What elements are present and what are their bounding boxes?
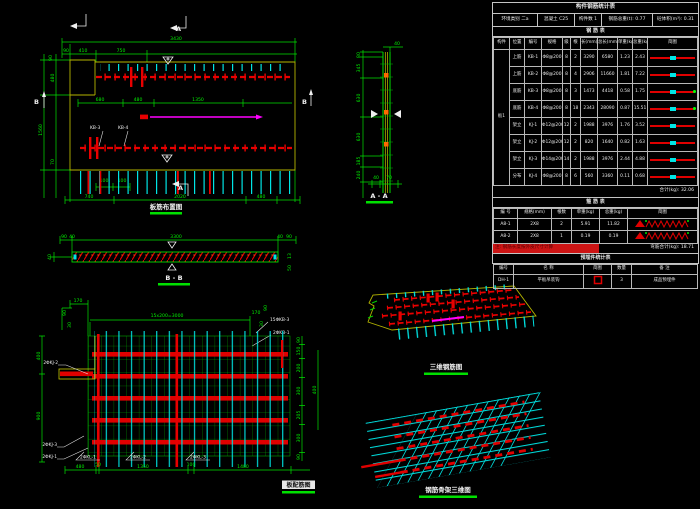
dim-label: 40 — [394, 41, 400, 47]
hoop-table: 编 号规格(mm)根数单重(kg)总重(kg)简图 A8-12X825.9111… — [493, 208, 698, 244]
dim-label: 900 — [36, 412, 42, 421]
table-row[interactable]: A8-12X825.9111.82 — [494, 219, 698, 231]
dim-label: 410 — [79, 48, 88, 54]
rebar-shape — [650, 121, 695, 131]
cyan-bars — [94, 331, 292, 467]
dim-label: 90 — [296, 337, 302, 343]
dim-label: 1350 — [192, 97, 204, 103]
dim-label: 30 — [67, 322, 73, 328]
dim-label: 40 — [47, 254, 53, 260]
rebar-row-bottom — [80, 137, 292, 159]
dim-label: 480 — [76, 464, 85, 470]
magenta-bar — [140, 115, 263, 120]
info-cell: 钢筋总重(t): 0.77 — [602, 14, 653, 26]
dim-label: 400 — [36, 352, 42, 361]
dim-label: 30 — [259, 321, 265, 327]
rebar-shape — [650, 70, 695, 80]
title-underline — [158, 283, 190, 286]
title-underline — [366, 201, 393, 204]
rebar-leader: 2ΦKL-1 — [80, 455, 96, 461]
dim-label: 480 — [50, 74, 56, 83]
end-mark — [274, 255, 277, 260]
dim-label: 1560 — [38, 124, 44, 136]
dim-label: 3430 — [170, 36, 182, 42]
rebar-leader: 2ΦKJ-1 — [42, 454, 57, 460]
end-mark — [74, 255, 77, 260]
level-symbol — [162, 155, 172, 162]
info-cell: 环境类别 二a — [493, 14, 538, 26]
plan-view[interactable]: 3430 90 410 750 90 480 1560 70 680 480 1… — [34, 14, 313, 215]
dim-label: 40 — [69, 234, 75, 240]
table-row[interactable]: 分布KJ-4Φ8@2008656033600.110.68 — [494, 169, 698, 186]
iso-cyan-stubs — [394, 316, 534, 340]
red-bar-vert — [97, 334, 100, 467]
embed-shape — [593, 275, 603, 285]
dim-label: 2020 — [174, 194, 186, 200]
dim-label: 150 — [296, 347, 302, 356]
info-cell: 砼体积(m³): 0.31 — [653, 14, 698, 26]
embed-table: 编号名 称简图数量备 注 DH-1 平板吊装钩 3 成品预埋件 — [493, 264, 698, 289]
dim-label: 680 — [96, 97, 105, 103]
rebar-leader: KB-3 — [90, 125, 100, 131]
red-bar-vert — [176, 334, 179, 467]
dim-label: 70 — [386, 175, 392, 181]
cyan-band-bottom — [80, 171, 298, 194]
dim-label: 1350 — [137, 464, 149, 470]
dim-label: 240 — [356, 171, 362, 180]
iso1-title: 三维钢筋图 — [430, 362, 463, 371]
table-header: 编 号规格(mm)根数单重(kg)总重(kg)简图 — [494, 209, 698, 219]
title-underline — [282, 491, 315, 494]
dim-label: 480 — [134, 97, 143, 103]
dim-label: 480 — [257, 194, 266, 200]
section-bb-title: B - B — [165, 274, 182, 282]
rebar-shape — [650, 155, 695, 165]
dim-label: 1480 — [237, 464, 249, 470]
svg-text:B: B — [302, 98, 307, 106]
title-underline — [419, 496, 477, 499]
rebar-leader: 2ΦKJ-2 — [43, 360, 58, 366]
dim-label: 70 — [50, 159, 56, 165]
rebar-shape — [650, 87, 695, 97]
dim-label: 15x200=3000 — [151, 313, 184, 319]
dim-label: 400 — [312, 386, 318, 395]
bent-bar-shape — [633, 219, 693, 228]
dim-label: 90 — [61, 234, 67, 240]
member — [380, 52, 393, 193]
rebar-layout-plan[interactable]: 170 90 30 15x200=3000 170 90 30 15ΦKB-3 … — [36, 298, 318, 494]
schedule-panel: 构件钢筋统计表 环境类别 二a 混凝土 C25 构件数 1 钢筋总重(t): 0… — [492, 2, 699, 264]
note-highlight: 注: 钢筋长度按外皮尺寸计算 — [493, 244, 599, 253]
iso-rebar-view[interactable]: 三维钢筋图 — [368, 284, 536, 375]
iso2-title: 钢筋骨架三维图 — [425, 485, 471, 494]
hoop-table-title: 箍 筋 表 — [493, 198, 698, 208]
dim-label: 630 — [356, 94, 362, 103]
table-row[interactable]: A8-22X810.190.19 — [494, 231, 698, 243]
dim-label: 90 — [63, 48, 69, 54]
rebar-leader: 2ΦKL-3 — [190, 455, 206, 461]
dim-label: 100 — [187, 462, 196, 468]
title-underline — [424, 373, 468, 376]
dim-label: 750 — [117, 48, 126, 54]
rebar-table-title: 钢 筋 表 — [493, 27, 698, 37]
table-header: 编号名 称简图数量备 注 — [494, 264, 698, 274]
section-aa-title: A - A — [370, 192, 387, 200]
magenta-bar — [432, 317, 464, 321]
dim-label: 90 — [62, 310, 68, 316]
iso-cage-view[interactable]: 钢筋骨架三维图 — [354, 391, 556, 498]
dim-label: 200 — [296, 364, 302, 373]
section-aa[interactable]: 80 345 630 630 185 240 40 40 70 A - A — [356, 41, 403, 204]
dim-label: 185 — [356, 157, 362, 166]
bent-bar-shape — [633, 231, 693, 240]
dim-label: 170 — [252, 310, 261, 316]
panel-info-row: 环境类别 二a 混凝土 C25 构件数 1 钢筋总重(t): 0.77 砼体积(… — [493, 14, 698, 27]
rebar-leader: KB-4 — [118, 125, 128, 131]
rebar-leader: 2ΦKJ-3 — [42, 442, 57, 448]
rebar-table: 构件位置编号规格级根长(mm)总长(mm)单重(kg)总重(kg)简图 板1上筋… — [493, 37, 698, 186]
note-sum: 弯筋合计(kg): 18.71 — [599, 246, 698, 251]
section-arrow — [70, 14, 86, 29]
dim-label: 90 — [296, 454, 302, 460]
grid-title: 板配筋图 — [286, 481, 310, 489]
svg-text:B: B — [34, 98, 39, 106]
dim-label: 630 — [356, 133, 362, 142]
dim-label: 3300 — [170, 234, 182, 240]
dim-label: 50 — [95, 462, 101, 468]
table-row[interactable]: DH-1 平板吊装钩 3 成品预埋件 — [494, 274, 698, 288]
section-bb[interactable]: 90 40 3300 40 90 40 13 50 B - B — [47, 234, 296, 286]
rebar-shape — [650, 172, 695, 182]
level-symbol — [163, 57, 173, 64]
slab-section — [72, 252, 278, 262]
embed-table-title: 预埋件统计表 — [493, 254, 698, 264]
table-row[interactable]: 上筋KB-2Φ8@200842906116601.817.22 — [494, 67, 698, 84]
dim-label: 90 — [286, 234, 292, 240]
rebar-shape — [650, 53, 695, 63]
table-header: 构件位置编号规格级根长(mm)总长(mm)单重(kg)总重(kg)简图 — [494, 38, 698, 50]
note-row: 注: 钢筋长度按外皮尺寸计算 弯筋合计(kg): 18.71 — [493, 244, 698, 254]
table-row[interactable]: 底筋KB-4Φ8@2008182343280900.8715.51 — [494, 101, 698, 118]
section-mark-b-left: B — [34, 91, 46, 108]
rebar-leader: 15ΦKB-3 — [270, 317, 290, 323]
dim-label: 13 — [287, 253, 293, 259]
dim-label: 345 — [356, 64, 362, 73]
info-cell: 混凝土 C25 — [538, 14, 575, 26]
dim-label: 90 — [263, 305, 269, 311]
dim-label: 90 — [48, 55, 54, 61]
dim-label: 80 — [356, 52, 362, 58]
info-cell: 构件数 1 — [575, 14, 602, 26]
rebar-sum: 合计(kg): 32.06 — [493, 186, 698, 198]
dim-label: 300 — [296, 387, 302, 396]
table-row[interactable]: 板1上筋KB-1Φ8@20082329065801.232.43 — [494, 50, 698, 67]
table-row[interactable]: 架立KJ-1Φ12@200122198839761.763.52 — [494, 118, 698, 135]
section-mark-b-right: B — [302, 89, 313, 106]
plan-title: 板筋布置图 — [150, 202, 183, 211]
title-underline — [150, 212, 182, 215]
section-mark-a-top: A — [170, 16, 186, 33]
table-row[interactable]: 底筋KB-3Φ8@20083147344180.581.75 — [494, 84, 698, 101]
dim-label: 205 — [296, 411, 302, 420]
table-row[interactable]: 架立KJ-3Φ14@200142198839762.444.88 — [494, 152, 698, 169]
cad-viewport: 3430 90 410 750 90 480 1560 70 680 480 1… — [0, 0, 700, 509]
dim-label: 170 — [74, 298, 83, 304]
dim-label: 300 — [296, 434, 302, 443]
red-bar-vert — [281, 340, 283, 368]
rebar-leader: 2ΦKL-2 — [130, 455, 146, 461]
dim-label: 50 — [287, 265, 293, 271]
cyan-ticks-top — [100, 64, 288, 71]
dim-label: 40 — [373, 175, 379, 181]
rebar-shape — [650, 138, 695, 148]
panel-title: 构件钢筋统计表 — [493, 3, 698, 14]
dim-label: 40 — [277, 234, 283, 240]
table-row[interactable]: 架立KJ-2Φ12@20012282016400.821.63 — [494, 135, 698, 152]
dim-label: 740 — [85, 194, 94, 200]
rebar-shape — [650, 104, 695, 114]
